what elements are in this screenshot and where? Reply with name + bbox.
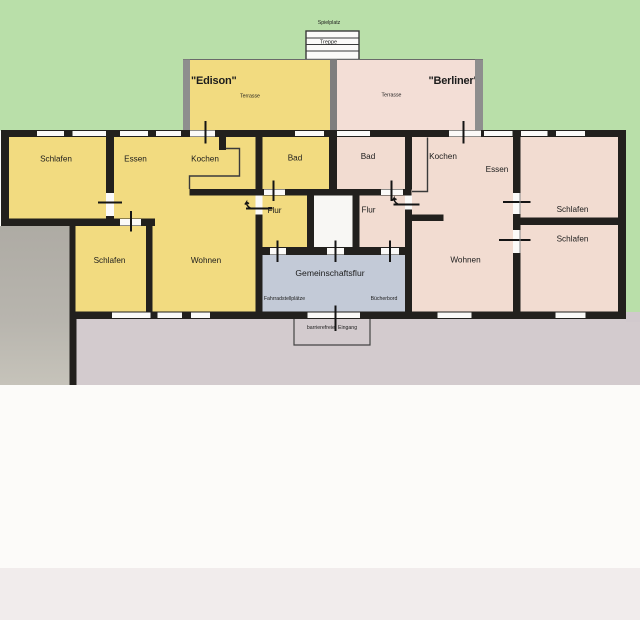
svg-text:"Edison": "Edison" bbox=[191, 75, 237, 87]
svg-text:Essen: Essen bbox=[486, 165, 509, 174]
svg-text:Schlafen: Schlafen bbox=[557, 205, 589, 214]
svg-text:Terrasse: Terrasse bbox=[382, 93, 402, 99]
svg-text:Flur: Flur bbox=[361, 206, 375, 215]
svg-text:Gemeinschaftsflur: Gemeinschaftsflur bbox=[295, 268, 364, 278]
svg-text:Essen: Essen bbox=[124, 155, 147, 164]
svg-text:Wohnen: Wohnen bbox=[191, 256, 222, 265]
svg-text:Fahrradstellplätze: Fahrradstellplätze bbox=[264, 296, 305, 302]
svg-text:Bücherbord: Bücherbord bbox=[371, 296, 398, 302]
svg-text:"Berliner": "Berliner" bbox=[428, 75, 478, 87]
svg-text:Terrasse: Terrasse bbox=[240, 94, 260, 100]
svg-text:barrierefreier Eingang: barrierefreier Eingang bbox=[307, 325, 357, 331]
svg-text:Kochen: Kochen bbox=[429, 152, 457, 161]
svg-text:Kochen: Kochen bbox=[191, 155, 219, 164]
svg-text:Schlafen: Schlafen bbox=[40, 155, 72, 164]
svg-text:Wohnen: Wohnen bbox=[450, 256, 481, 265]
svg-text:Schlafen: Schlafen bbox=[94, 256, 126, 265]
svg-text:Spielplatz: Spielplatz bbox=[318, 20, 341, 26]
svg-text:Bad: Bad bbox=[361, 152, 376, 161]
svg-text:Bad: Bad bbox=[288, 154, 303, 163]
svg-text:Treppe: Treppe bbox=[320, 40, 337, 46]
svg-text:Schlafen: Schlafen bbox=[557, 235, 589, 244]
svg-text:Flur: Flur bbox=[267, 206, 281, 215]
